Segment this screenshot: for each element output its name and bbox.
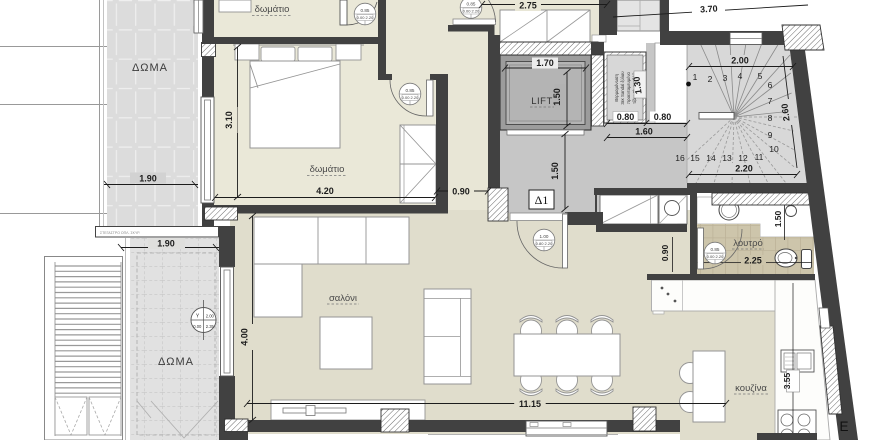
- svg-text:10: 10: [769, 144, 779, 154]
- svg-text:5: 5: [758, 71, 763, 81]
- svg-text:2.00: 2.00: [206, 314, 215, 319]
- svg-text:4.20: 4.20: [316, 186, 334, 196]
- svg-text:1.30: 1.30: [631, 76, 643, 95]
- svg-text:LIFT: LIFT: [531, 96, 553, 107]
- svg-text:3εκ Sandal ξύλου: 3εκ Sandal ξύλου: [620, 71, 625, 105]
- svg-text:1.50: 1.50: [552, 88, 562, 106]
- svg-text:8: 8: [768, 113, 773, 123]
- svg-text:1.70: 1.70: [536, 58, 554, 68]
- svg-text:14: 14: [706, 153, 716, 163]
- svg-text:0.80: 0.80: [654, 112, 672, 122]
- svg-text:16: 16: [675, 153, 685, 163]
- svg-text:3: 3: [723, 73, 728, 83]
- svg-text:δωμάτιο: δωμάτιο: [310, 164, 345, 175]
- svg-text:7: 7: [768, 96, 773, 106]
- svg-text:3.10: 3.10: [224, 111, 234, 129]
- svg-text:0.00 2.20: 0.00 2.20: [463, 9, 480, 14]
- svg-text:Θερμομόνωση: Θερμομόνωση: [614, 73, 619, 102]
- svg-text:1.50: 1.50: [773, 210, 783, 227]
- svg-text:1.60: 1.60: [635, 127, 653, 137]
- svg-text:σαλόνι: σαλόνι: [329, 293, 357, 304]
- svg-text:0.85: 0.85: [711, 247, 720, 252]
- svg-text:1.00: 1.00: [540, 234, 549, 239]
- svg-text:2.60: 2.60: [779, 103, 791, 122]
- svg-text:0.90: 0.90: [452, 187, 470, 197]
- svg-text:ΣΤΕΓΑΣΤΡΟ ΟΠΛ. ΣΚΥΡ.: ΣΤΕΓΑΣΤΡΟ ΟΠΛ. ΣΚΥΡ.: [100, 231, 140, 235]
- svg-text:Δ1: Δ1: [535, 193, 549, 207]
- svg-text:4.00: 4.00: [240, 328, 250, 346]
- svg-text:1: 1: [693, 72, 698, 82]
- svg-text:3.55: 3.55: [782, 372, 792, 389]
- svg-text:προεντομευμένα: προεντομευμένα: [626, 72, 631, 104]
- svg-text:0.85: 0.85: [467, 2, 476, 7]
- svg-text:E: E: [839, 419, 848, 434]
- svg-text:0.80 2.20: 0.80 2.20: [536, 241, 553, 246]
- svg-text:13: 13: [722, 153, 732, 163]
- svg-text:2.75: 2.75: [519, 1, 537, 11]
- svg-text:1.90: 1.90: [139, 174, 157, 184]
- svg-text:δωμάτιο: δωμάτιο: [255, 4, 290, 15]
- svg-text:κουζίνα: κουζίνα: [735, 383, 767, 394]
- svg-text:2.35: 2.35: [206, 324, 215, 329]
- svg-text:2.20: 2.20: [735, 164, 753, 174]
- svg-text:0.90: 0.90: [660, 244, 670, 261]
- svg-text:0.00 2.20: 0.00 2.20: [402, 95, 419, 100]
- svg-text:0.00: 0.00: [193, 324, 202, 329]
- svg-text:2: 2: [708, 74, 713, 84]
- svg-text:0.85: 0.85: [406, 88, 415, 93]
- svg-text:2.00: 2.00: [731, 56, 749, 66]
- svg-text:0.80: 0.80: [617, 112, 635, 122]
- svg-text:2.25: 2.25: [744, 256, 762, 266]
- svg-text:3.70: 3.70: [700, 3, 718, 14]
- svg-text:1.50: 1.50: [550, 162, 560, 180]
- svg-text:0.00 2.20: 0.00 2.20: [357, 15, 374, 20]
- svg-text:11: 11: [755, 152, 764, 162]
- svg-text:6: 6: [768, 80, 773, 90]
- svg-text:4: 4: [738, 71, 743, 81]
- svg-text:ΔΩΜΑ: ΔΩΜΑ: [132, 62, 168, 74]
- svg-text:ΔΩΜΑ: ΔΩΜΑ: [158, 356, 194, 368]
- svg-text:15: 15: [690, 153, 700, 163]
- svg-text:0.00 2.20: 0.00 2.20: [707, 254, 724, 259]
- svg-text:9: 9: [768, 130, 773, 140]
- svg-text:12: 12: [738, 153, 748, 163]
- svg-text:1.90: 1.90: [157, 239, 175, 249]
- svg-text:0.85: 0.85: [361, 8, 370, 13]
- svg-text:11.15: 11.15: [519, 399, 541, 409]
